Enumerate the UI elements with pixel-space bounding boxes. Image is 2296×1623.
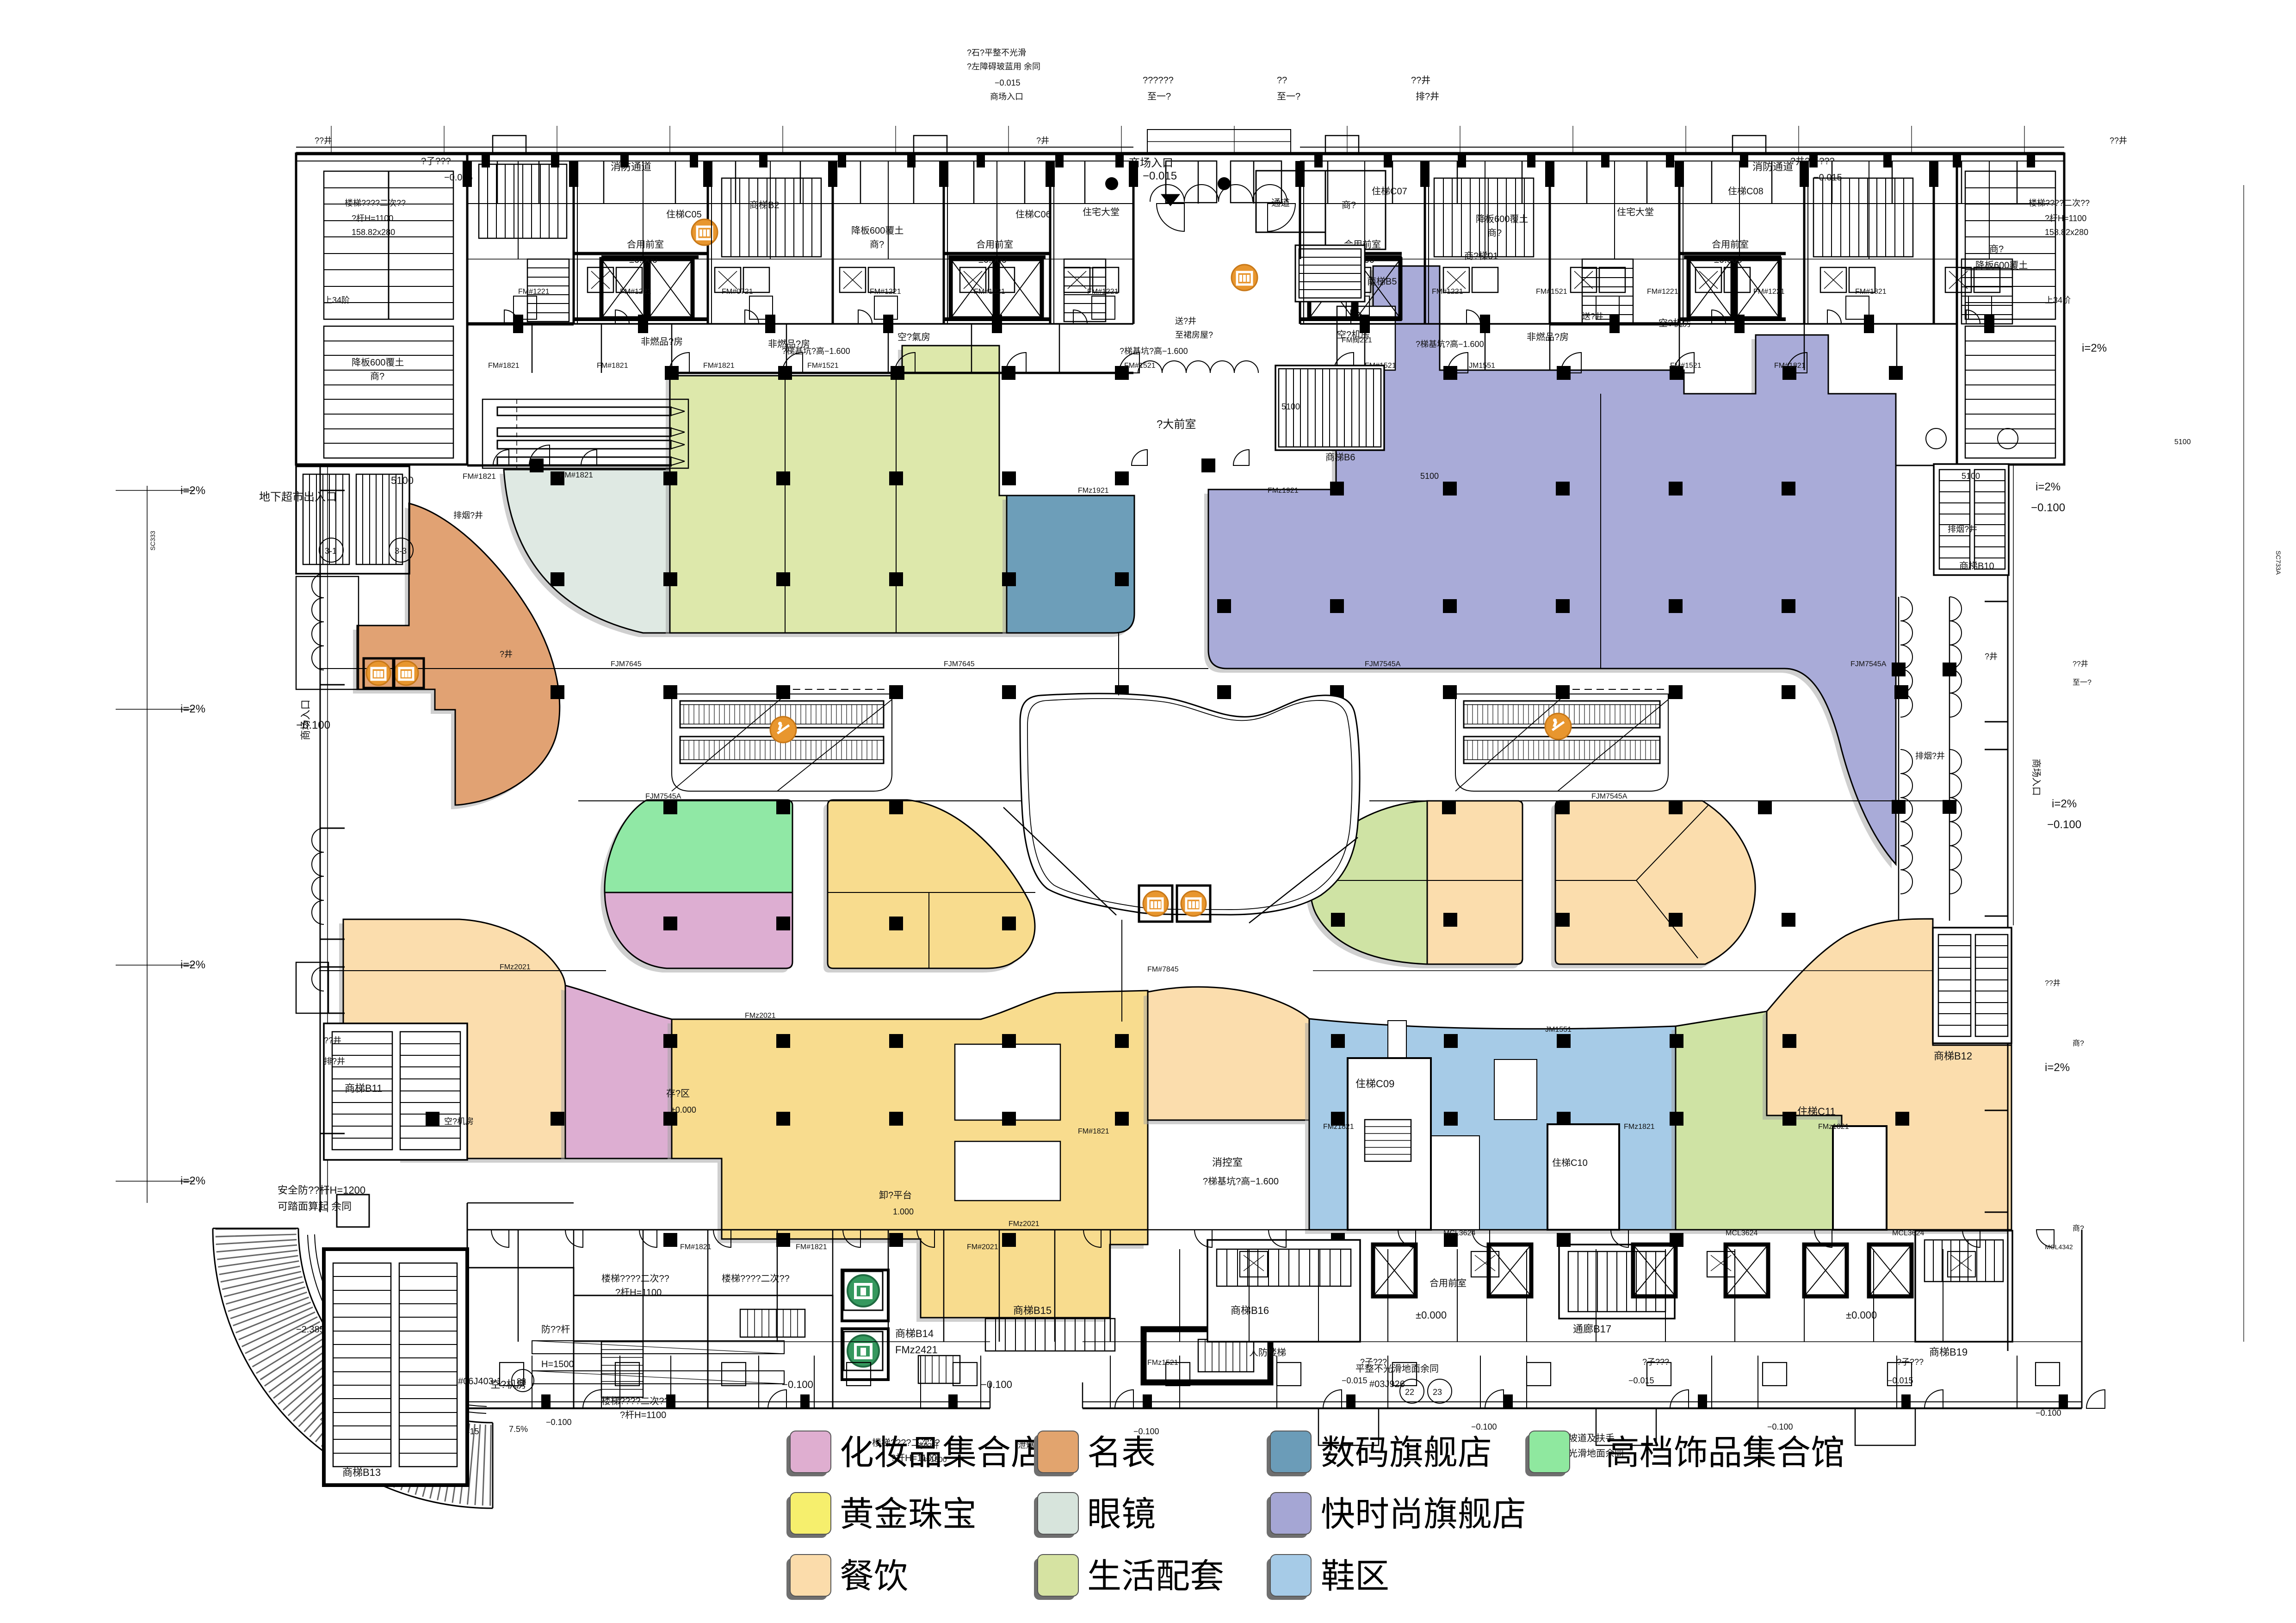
svg-text:??: ?? xyxy=(1277,75,1287,86)
svg-text:?杆H=1100: ?杆H=1100 xyxy=(352,214,393,223)
svg-text:商梯B15: 商梯B15 xyxy=(1013,1305,1052,1316)
svg-text:排烟?井: 排烟?井 xyxy=(453,511,483,520)
svg-text:上34阶: 上34阶 xyxy=(2045,296,2071,305)
svg-text:?梯基坑?高−1.600: ?梯基坑?高−1.600 xyxy=(1203,1176,1279,1187)
svg-text:降板600覆土: 降板600覆土 xyxy=(1975,260,2028,271)
svg-text:存?区: 存?区 xyxy=(666,1088,690,1099)
svg-text:FJM7545A: FJM7545A xyxy=(1365,660,1401,668)
svg-text:−0.100: −0.100 xyxy=(1471,1422,1497,1431)
svg-text:商场入口: 商场入口 xyxy=(2031,759,2042,796)
svg-text:合用前室: 合用前室 xyxy=(976,239,1013,250)
svg-text:卸?平台: 卸?平台 xyxy=(879,1190,912,1201)
svg-text:楼梯????二次??: 楼梯????二次?? xyxy=(722,1273,790,1284)
svg-text:住梯C10: 住梯C10 xyxy=(1552,1158,1588,1168)
svg-text:FMz2021: FMz2021 xyxy=(1009,1220,1040,1228)
svg-text:数码旗舰店: 数码旗舰店 xyxy=(1321,1433,1492,1472)
svg-text:158.82x280: 158.82x280 xyxy=(352,228,395,237)
svg-text:5100: 5100 xyxy=(1281,402,1300,411)
svg-text:排烟?井: 排烟?井 xyxy=(1915,751,1945,761)
svg-text:消防通道: 消防通道 xyxy=(1752,161,1793,173)
svg-text:排?井: 排?井 xyxy=(324,1057,345,1066)
svg-text:JM1551: JM1551 xyxy=(1545,1026,1572,1034)
svg-text:?井: ?井 xyxy=(1036,136,1049,145)
svg-text:−2.385: −2.385 xyxy=(296,1325,325,1335)
svg-text:空?机房: 空?机房 xyxy=(444,1117,474,1126)
svg-text:?梯基坑?高−1.600: ?梯基坑?高−1.600 xyxy=(782,347,850,356)
svg-text:FM#1221: FM#1221 xyxy=(974,288,1005,296)
svg-text:商?: 商? xyxy=(1989,244,2004,254)
svg-text:FM#1821: FM#1821 xyxy=(488,362,520,370)
svg-text:商梯B11: 商梯B11 xyxy=(345,1083,383,1094)
svg-text:高档饰品集合馆: 高档饰品集合馆 xyxy=(1605,1433,1845,1472)
svg-text:?井: ?井 xyxy=(500,650,513,659)
svg-text:#03J926: #03J926 xyxy=(1369,1379,1405,1389)
svg-text:?子???: ?子??? xyxy=(1360,1357,1387,1367)
svg-text:5100: 5100 xyxy=(2174,438,2191,446)
svg-text:FJM7645: FJM7645 xyxy=(944,660,975,668)
svg-text:−0.100: −0.100 xyxy=(2047,818,2081,831)
svg-text:i=2%: i=2% xyxy=(2052,798,2077,810)
svg-text:SC333: SC333 xyxy=(149,531,156,551)
svg-text:生活配套: 生活配套 xyxy=(1087,1557,1224,1595)
svg-text:黄金珠宝: 黄金珠宝 xyxy=(840,1495,977,1533)
svg-text:FM#1821: FM#1821 xyxy=(560,471,593,479)
svg-text:5100: 5100 xyxy=(1962,471,1980,481)
svg-text:−0.015: −0.015 xyxy=(1342,1376,1368,1385)
svg-text:±0.000: ±0.000 xyxy=(671,1105,696,1115)
svg-text:−0.015: −0.015 xyxy=(1888,1376,1913,1385)
svg-text:人防楼梯: 人防楼梯 xyxy=(1249,1347,1286,1358)
svg-text:鞋区: 鞋区 xyxy=(1321,1557,1389,1595)
svg-text:−0.100: −0.100 xyxy=(546,1418,572,1427)
svg-text:−0.100: −0.100 xyxy=(2031,502,2065,514)
svg-text:餐饮: 餐饮 xyxy=(840,1557,908,1595)
svg-text:H=1500: H=1500 xyxy=(541,1359,574,1369)
svg-text:?大前室: ?大前室 xyxy=(1157,418,1196,431)
svg-text:商梯B16: 商梯B16 xyxy=(1231,1305,1269,1316)
svg-text:MCL3624: MCL3624 xyxy=(1892,1229,1924,1237)
svg-text:MCL3624: MCL3624 xyxy=(1726,1229,1758,1237)
svg-text:送?井: 送?井 xyxy=(1175,316,1196,326)
svg-text:−0.015: −0.015 xyxy=(1628,1376,1654,1385)
svg-text:通廊B17: 通廊B17 xyxy=(1573,1323,1611,1335)
svg-text:FM#1821: FM#1821 xyxy=(680,1243,712,1251)
svg-text:合用前室: 合用前室 xyxy=(1430,1278,1467,1288)
svg-text:合用前室: 合用前室 xyxy=(627,239,664,250)
svg-text:名表: 名表 xyxy=(1087,1433,1156,1472)
svg-text:FM#1221: FM#1221 xyxy=(1753,288,1785,296)
svg-text:FM#1521: FM#1521 xyxy=(1536,288,1567,296)
svg-text:?子???: ?子??? xyxy=(421,156,451,167)
svg-text:商梯B2: 商梯B2 xyxy=(749,200,779,211)
svg-text:FM#1221: FM#1221 xyxy=(620,288,651,296)
svg-text:−0.015: −0.015 xyxy=(995,78,1021,87)
svg-text:?梯基坑?高−1.600: ?梯基坑?高−1.600 xyxy=(1416,340,1484,349)
svg-text:防??杆: 防??杆 xyxy=(541,1324,570,1335)
svg-text:JM1551: JM1551 xyxy=(1469,362,1495,370)
svg-text:??????: ?????? xyxy=(1143,75,1174,86)
svg-text:−0.100: −0.100 xyxy=(1767,1422,1793,1431)
svg-text:非燃品?房: 非燃品?房 xyxy=(641,336,683,347)
svg-text:?井: ?井 xyxy=(1985,652,1998,661)
svg-text:至一?: 至一? xyxy=(1147,92,1171,102)
svg-text:?杆H=1100: ?杆H=1100 xyxy=(615,1287,662,1298)
svg-text:−0.015: −0.015 xyxy=(1143,170,1177,182)
svg-text:±0.000: ±0.000 xyxy=(1416,1309,1447,1321)
svg-text:??井: ??井 xyxy=(2045,979,2061,987)
svg-text:FMz1821: FMz1821 xyxy=(1624,1123,1655,1131)
svg-text:可踏面算起 余同: 可踏面算起 余同 xyxy=(278,1201,352,1212)
svg-text:合用前室: 合用前室 xyxy=(1712,239,1749,250)
svg-text:空?氣房: 空?氣房 xyxy=(897,332,930,342)
svg-text:商?: 商? xyxy=(1487,228,1502,238)
svg-text:1.000: 1.000 xyxy=(893,1207,914,1216)
svg-text:排?井: 排?井 xyxy=(1416,91,1439,102)
svg-text:??井: ??井 xyxy=(2073,660,2088,668)
svg-text:FM#1221: FM#1221 xyxy=(870,288,901,296)
svg-text:FMz1921: FMz1921 xyxy=(1268,487,1299,495)
svg-text:排烟?井: 排烟?井 xyxy=(1948,525,1977,534)
svg-text:南梯B5: 南梯B5 xyxy=(1367,276,1397,287)
svg-text:FM#1821: FM#1821 xyxy=(796,1243,827,1251)
svg-text:FM#1821: FM#1821 xyxy=(1855,288,1887,296)
svg-text:FM#1821: FM#1821 xyxy=(1078,1127,1109,1135)
svg-text:−0.100: −0.100 xyxy=(782,1379,813,1390)
svg-text:±0.000: ±0.000 xyxy=(1846,1309,1877,1321)
svg-text:FMz1821: FMz1821 xyxy=(1323,1123,1354,1131)
svg-text:住宅大堂: 住宅大堂 xyxy=(1083,207,1120,217)
svg-text:住宅大堂: 住宅大堂 xyxy=(1617,207,1654,217)
svg-text:SC733A: SC733A xyxy=(2275,551,2282,575)
svg-text:商梯B6: 商梯B6 xyxy=(1325,452,1355,463)
svg-text:至裙房屋?: 至裙房屋? xyxy=(1175,330,1213,340)
svg-text:FM#1221: FM#1221 xyxy=(1647,288,1678,296)
svg-text:−0.100: −0.100 xyxy=(2036,1408,2061,1418)
svg-text:商梯B19: 商梯B19 xyxy=(1929,1346,1968,1358)
svg-text:商?梯01: 商?梯01 xyxy=(1464,251,1498,261)
svg-text:消控室: 消控室 xyxy=(1212,1157,1243,1168)
svg-text:商梯B13: 商梯B13 xyxy=(342,1467,381,1478)
svg-text:22: 22 xyxy=(1405,1388,1414,1397)
svg-text:化妆品集合店: 化妆品集合店 xyxy=(840,1433,1045,1472)
svg-text:i=2%: i=2% xyxy=(2045,1061,2070,1074)
svg-text:#06J403-1: #06J403-1 xyxy=(458,1376,502,1387)
svg-text:7.5%: 7.5% xyxy=(509,1425,528,1434)
svg-text:住梯C07: 住梯C07 xyxy=(1372,186,1407,197)
svg-text:FM#1221: FM#1221 xyxy=(1432,288,1463,296)
svg-text:??井: ??井 xyxy=(324,1036,341,1045)
svg-text:住梯C08: 住梯C08 xyxy=(1728,186,1764,197)
svg-text:FMz2021: FMz2021 xyxy=(500,963,531,971)
svg-text:住梯C05: 住梯C05 xyxy=(666,209,702,220)
svg-text:3-3: 3-3 xyxy=(395,546,407,556)
svg-text:MCL3624: MCL3624 xyxy=(1443,1229,1475,1237)
svg-text:−0.015: −0.015 xyxy=(1813,173,1842,183)
svg-text:商梯B12: 商梯B12 xyxy=(1934,1050,1972,1062)
svg-text:158.82x280: 158.82x280 xyxy=(2045,228,2088,237)
svg-text:消防通道: 消防通道 xyxy=(611,161,651,173)
svg-text:FM#1221: FM#1221 xyxy=(518,288,550,296)
svg-text:住梯C06: 住梯C06 xyxy=(1015,209,1051,220)
svg-text:降板600覆土: 降板600覆土 xyxy=(851,225,904,236)
svg-text:FM#2021: FM#2021 xyxy=(967,1243,998,1251)
svg-text:FM#7845: FM#7845 xyxy=(1147,966,1179,973)
svg-text:商?: 商? xyxy=(1342,200,1356,211)
svg-text:商场入口: 商场入口 xyxy=(990,92,1023,101)
svg-text:??井: ??井 xyxy=(315,136,332,145)
svg-text:降板600覆土: 降板600覆土 xyxy=(1476,214,1528,224)
svg-text:FJM7645: FJM7645 xyxy=(611,660,642,668)
svg-text:3-1: 3-1 xyxy=(325,546,337,556)
svg-text:地下超市出入口: 地下超市出入口 xyxy=(259,491,337,503)
svg-text:楼梯????二次??: 楼梯????二次?? xyxy=(345,198,406,208)
svg-text:?左障碍玻蓝用 余同: ?左障碍玻蓝用 余同 xyxy=(967,62,1040,71)
svg-text:FM#1221: FM#1221 xyxy=(1087,288,1119,296)
svg-text:FMz2421: FMz2421 xyxy=(895,1344,938,1356)
svg-text:FJM7545A: FJM7545A xyxy=(645,793,681,800)
svg-text:FMz1821: FMz1821 xyxy=(1818,1123,1849,1131)
svg-text:楼梯????二次??: 楼梯????二次?? xyxy=(601,1273,669,1284)
svg-text:FM#1821: FM#1821 xyxy=(597,362,628,370)
svg-text:商场入口: 商场入口 xyxy=(300,700,311,740)
svg-text:FJM7545A: FJM7545A xyxy=(1850,660,1887,668)
svg-text:23: 23 xyxy=(1433,1388,1442,1397)
svg-text:至一?: 至一? xyxy=(1277,92,1300,102)
svg-text:FM#1821: FM#1821 xyxy=(1774,362,1806,370)
svg-text:?杆H=1100: ?杆H=1100 xyxy=(2045,214,2086,223)
svg-text:商?: 商? xyxy=(870,239,884,250)
svg-text:降板600覆土: 降板600覆土 xyxy=(352,357,404,368)
svg-text:至一?: 至一? xyxy=(2073,679,2092,687)
svg-text:住梯C09: 住梯C09 xyxy=(1355,1078,1394,1090)
svg-text:FM#1821: FM#1821 xyxy=(703,362,735,370)
svg-text:FM#0721: FM#0721 xyxy=(722,288,753,296)
svg-text:楼梯????二次??: 楼梯????二次?? xyxy=(601,1396,669,1406)
svg-text:FMz2021: FMz2021 xyxy=(745,1012,776,1020)
svg-text:商梯B14: 商梯B14 xyxy=(895,1328,934,1339)
svg-text:非燃品?房: 非燃品?房 xyxy=(1527,332,1569,342)
svg-text:FJM7545A: FJM7545A xyxy=(1591,793,1628,800)
svg-text:??井: ??井 xyxy=(2110,136,2127,145)
svg-text:i=2%: i=2% xyxy=(2036,481,2061,493)
svg-text:5100: 5100 xyxy=(391,475,414,486)
svg-text:商梯B10: 商梯B10 xyxy=(1959,561,1994,571)
svg-text:上34阶: 上34阶 xyxy=(324,296,350,305)
svg-text:快时尚旗舰店: 快时尚旗舰店 xyxy=(1321,1495,1526,1533)
svg-text:5100: 5100 xyxy=(1420,471,1439,481)
svg-text:FM#1821: FM#1821 xyxy=(463,472,496,481)
svg-text:?杆H=1100: ?杆H=1100 xyxy=(620,1410,666,1420)
svg-text:住梯C11: 住梯C11 xyxy=(1797,1106,1836,1117)
svg-text:眼镜: 眼镜 xyxy=(1087,1495,1156,1533)
svg-text:i=2%: i=2% xyxy=(2082,342,2107,354)
svg-text:商?: 商? xyxy=(370,371,384,382)
svg-text:−0.100: −0.100 xyxy=(981,1379,1012,1390)
svg-text:88: 88 xyxy=(517,1377,526,1386)
svg-text:?石?平整不光滑: ?石?平整不光滑 xyxy=(967,48,1026,57)
svg-text:??井: ??井 xyxy=(1411,75,1430,86)
svg-text:商?: 商? xyxy=(2073,1039,2084,1047)
svg-text:FMz1921: FMz1921 xyxy=(1078,487,1109,495)
svg-text:FM#1521: FM#1521 xyxy=(807,362,839,370)
